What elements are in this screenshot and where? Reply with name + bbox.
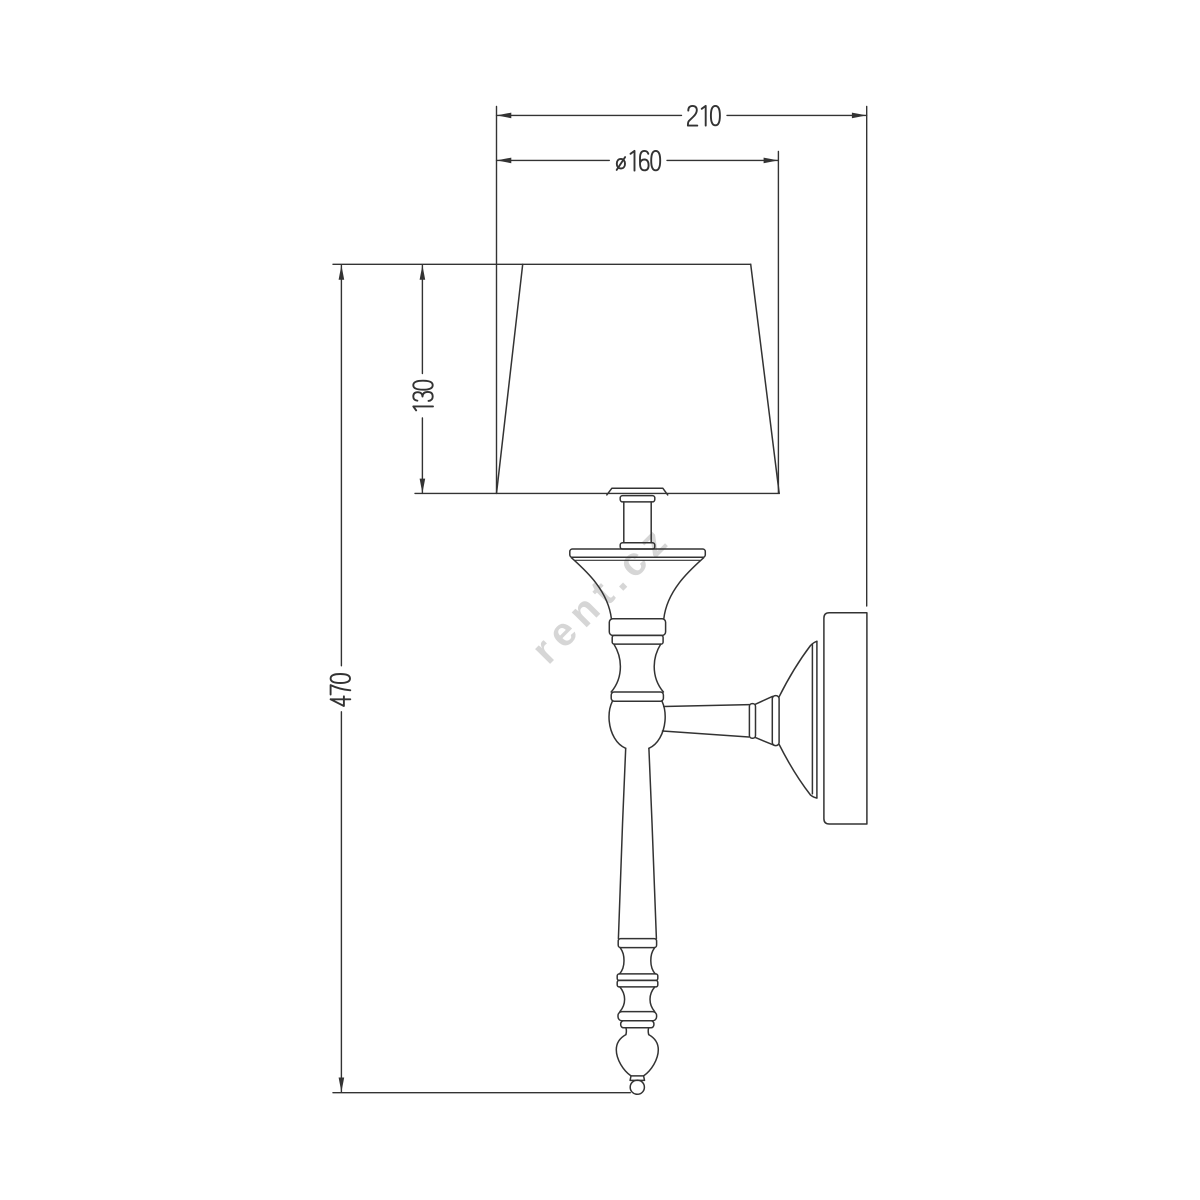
svg-text:rent.cz: rent.cz <box>523 515 680 672</box>
